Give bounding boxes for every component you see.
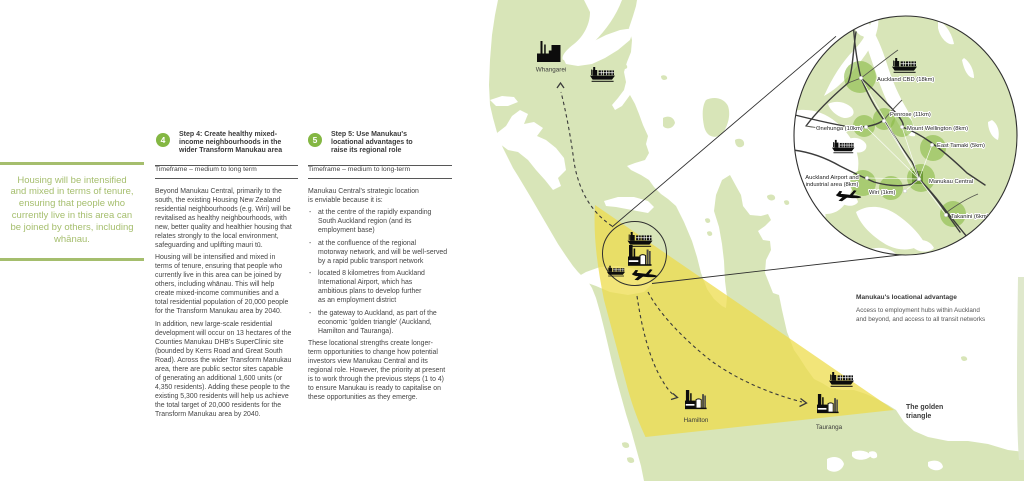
svg-text:Whangarei: Whangarei [536, 67, 566, 74]
svg-text:industrial area (8km): industrial area (8km) [806, 182, 859, 188]
svg-text:Access to employment hubs with: Access to employment hubs within Aucklan… [856, 307, 980, 314]
svg-text:Manukau's locational advantage: Manukau's locational advantage [856, 294, 957, 301]
svg-text:Hamilton: Hamilton [684, 417, 709, 424]
svg-text:and beyond, and access to all: and beyond, and access to all transit ne… [856, 316, 985, 323]
svg-text:Onehunga (10km): Onehunga (10km) [816, 126, 863, 132]
svg-text:Manukau Central: Manukau Central [929, 179, 973, 185]
svg-text:Takanini (6km): Takanini (6km) [951, 214, 989, 220]
svg-text:triangle: triangle [906, 413, 931, 420]
svg-text:Auckland Airport and: Auckland Airport and [805, 175, 859, 181]
svg-text:The golden: The golden [906, 404, 943, 411]
svg-text:East Tamaki (5km): East Tamaki (5km) [937, 143, 985, 149]
svg-text:Mount Wellington (8km): Mount Wellington (8km) [907, 126, 968, 132]
svg-text:Auckland CBD (18km): Auckland CBD (18km) [877, 77, 934, 83]
svg-text:Wiri (1km): Wiri (1km) [869, 190, 895, 196]
svg-text:Penrose (11km): Penrose (11km) [890, 112, 931, 118]
svg-text:Tauranga: Tauranga [816, 424, 843, 431]
